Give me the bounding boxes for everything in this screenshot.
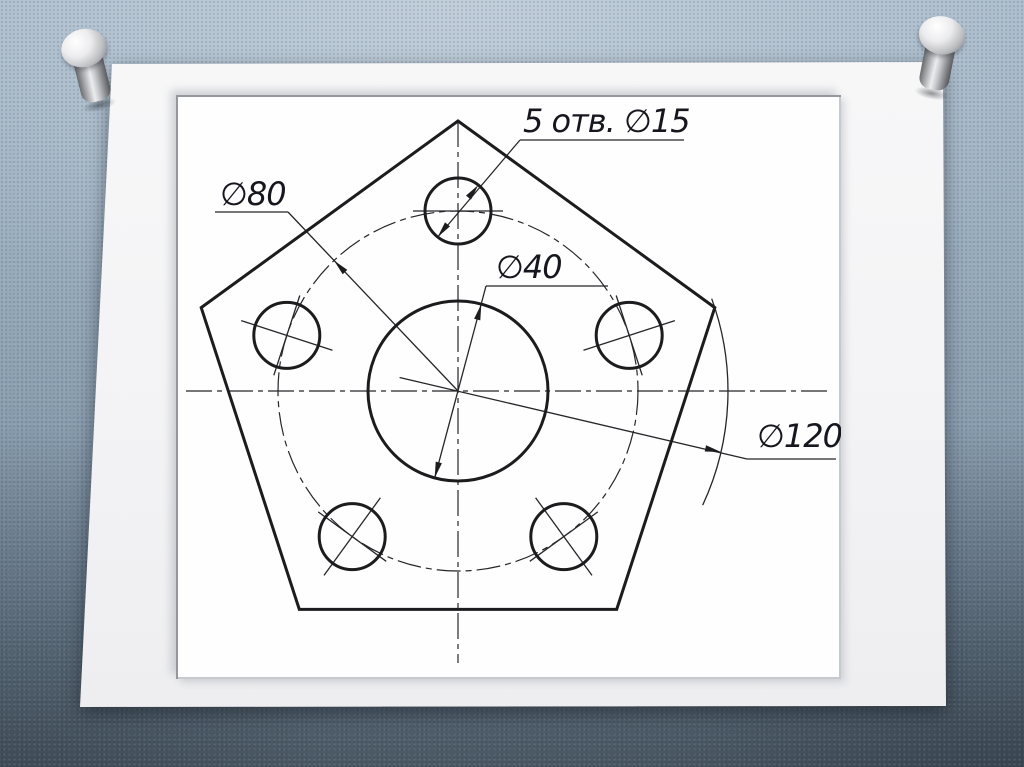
slide-shadow-wrapper: 5 отв. ∅15 ∅80 ∅40 ∅120 bbox=[0, 0, 1024, 767]
engineering-drawing-svg: 5 отв. ∅15 ∅80 ∅40 ∅120 bbox=[176, 95, 841, 679]
drawing-panel: 5 отв. ∅15 ∅80 ∅40 ∅120 bbox=[176, 95, 841, 679]
circumscribed-diameter-label: ∅120 bbox=[757, 417, 841, 455]
holes-note-label: 5 отв. ∅15 bbox=[523, 102, 690, 140]
pinned-slide: 5 отв. ∅15 ∅80 ∅40 ∅120 bbox=[0, 0, 1024, 767]
bolt-circle-label: ∅80 bbox=[220, 175, 286, 213]
center-hole-label: ∅40 bbox=[496, 248, 562, 286]
